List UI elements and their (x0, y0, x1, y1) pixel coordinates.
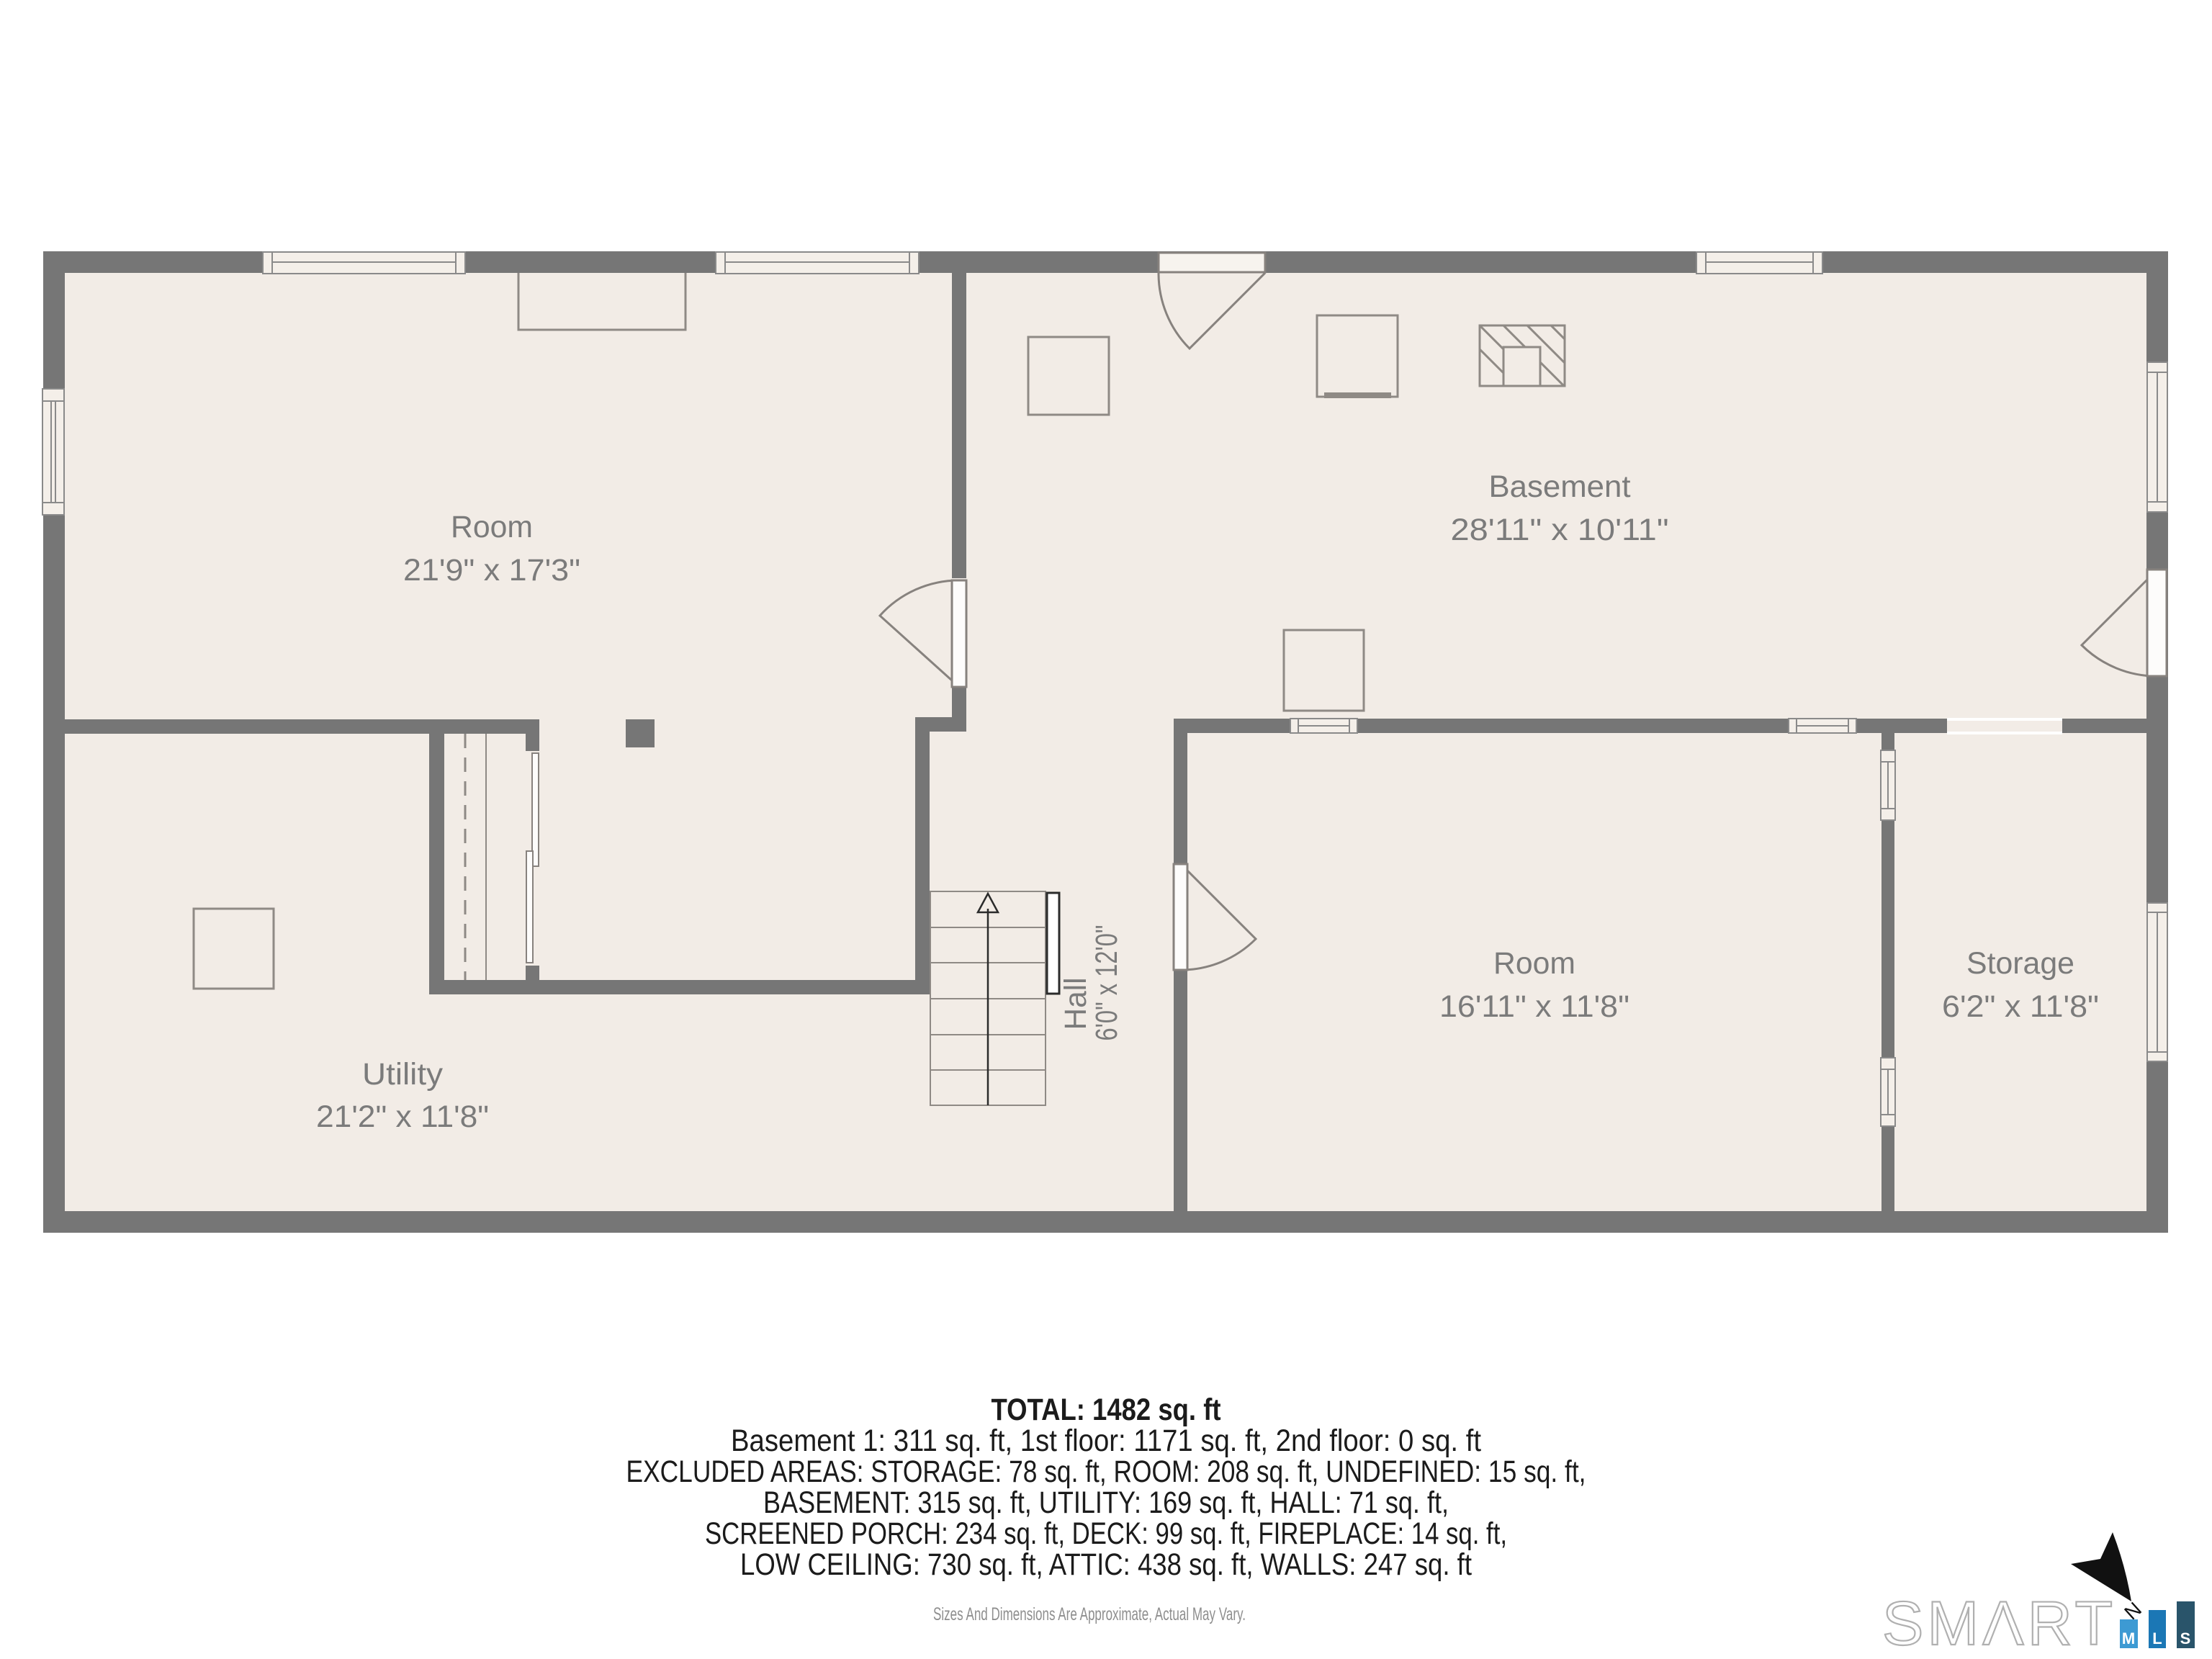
svg-text:Room: Room (451, 510, 533, 544)
svg-text:Room: Room (1493, 946, 1575, 981)
svg-text:BASEMENT: 315 sq. ft, UTILITY:: BASEMENT: 315 sq. ft, UTILITY: 169 sq. f… (763, 1485, 1449, 1520)
svg-text:M: M (2122, 1629, 2135, 1647)
svg-text:Storage: Storage (1966, 946, 2074, 981)
svg-text:L: L (2152, 1629, 2162, 1647)
svg-text:6'2" x 11'8": 6'2" x 11'8" (1942, 989, 2099, 1024)
svg-text:SMΛRT: SMΛRT (1882, 1589, 2113, 1658)
svg-text:21'9" x 17'3": 21'9" x 17'3" (403, 553, 580, 588)
svg-text:6'0" x 12'0": 6'0" x 12'0" (1089, 925, 1124, 1041)
svg-text:S: S (2180, 1629, 2191, 1647)
svg-text:21'2" x 11'8": 21'2" x 11'8" (316, 1100, 489, 1134)
svg-text:EXCLUDED AREAS: STORAGE: 78 sq: EXCLUDED AREAS: STORAGE: 78 sq. ft, ROOM… (626, 1455, 1586, 1489)
svg-text:28'11" x 10'11": 28'11" x 10'11" (1451, 513, 1669, 547)
svg-text:16'11" x 11'8": 16'11" x 11'8" (1439, 989, 1629, 1024)
svg-text:Basement 1: 311 sq. ft, 1st fl: Basement 1: 311 sq. ft, 1st floor: 1171 … (731, 1424, 1481, 1458)
svg-text:TOTAL: 1482 sq. ft: TOTAL: 1482 sq. ft (992, 1393, 1221, 1427)
svg-text:Hall: Hall (1058, 978, 1093, 1030)
svg-text:LOW CEILING: 730 sq. ft, ATTIC: LOW CEILING: 730 sq. ft, ATTIC: 438 sq. … (740, 1547, 1472, 1582)
svg-text:SCREENED PORCH: 234 sq. ft, DE: SCREENED PORCH: 234 sq. ft, DECK: 99 sq.… (705, 1516, 1507, 1551)
svg-text:Utility: Utility (362, 1057, 444, 1092)
svg-text:Sizes And Dimensions Are Appro: Sizes And Dimensions Are Approximate, Ac… (933, 1604, 1246, 1624)
svg-text:Basement: Basement (1489, 469, 1631, 504)
